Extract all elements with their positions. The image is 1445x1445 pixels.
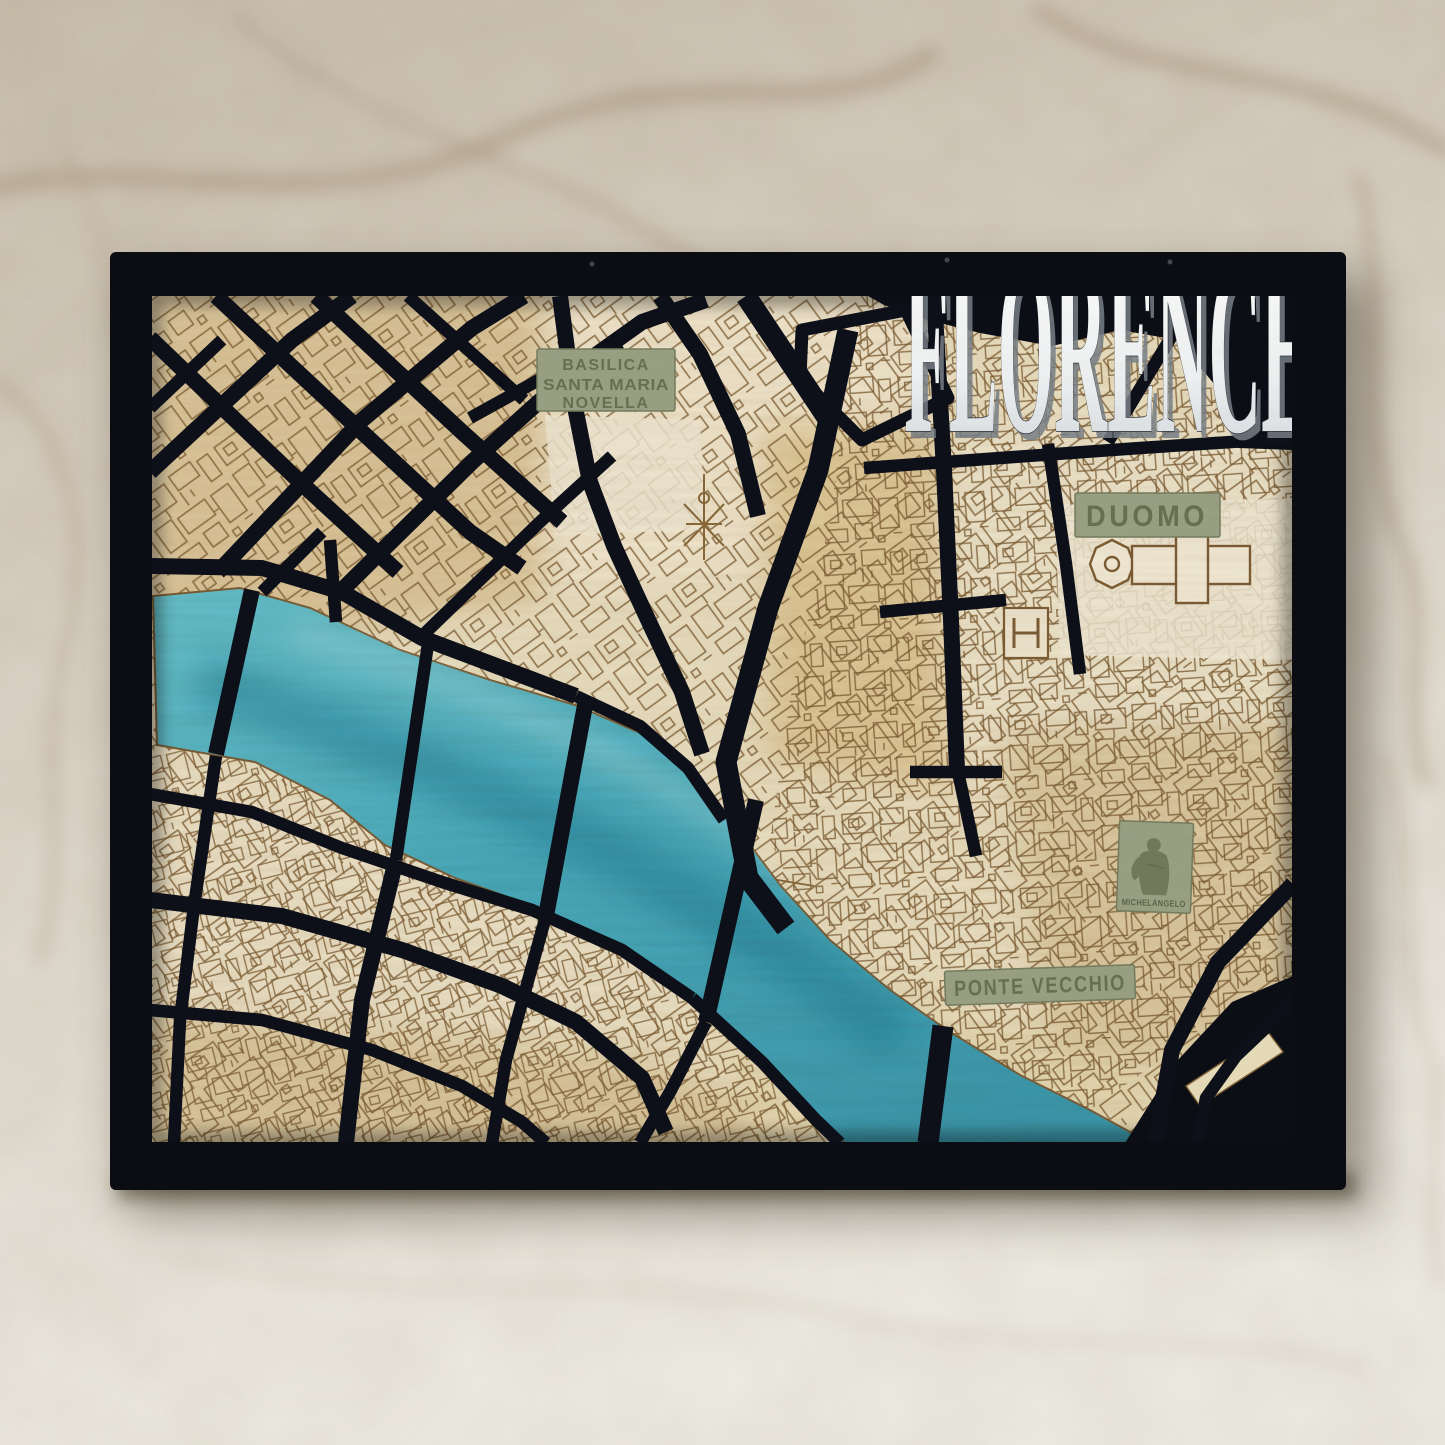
wood-map: BASILICA SANTA MARIA NOVELLA DUOMO PONTE… (150, 213, 1315, 1200)
surface-grain-overlay (152, 296, 1292, 1142)
photo-of-wooden-map-art: BASILICA SANTA MARIA NOVELLA DUOMO PONTE… (0, 0, 1445, 1445)
